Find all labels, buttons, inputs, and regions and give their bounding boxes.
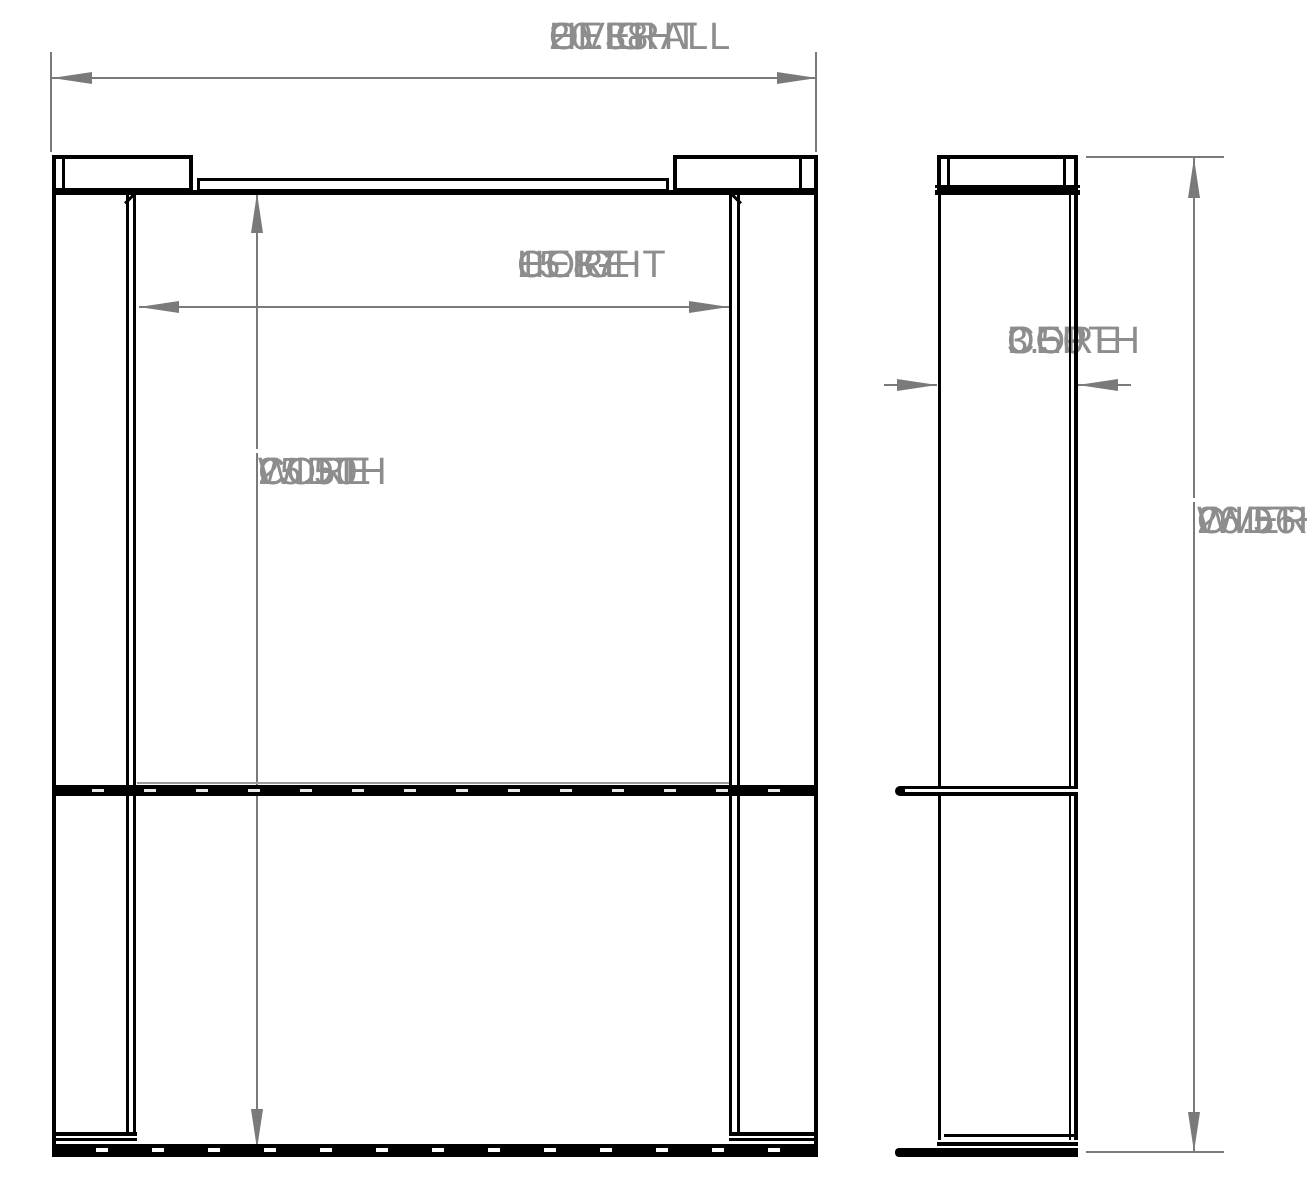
side-cap-flange xyxy=(935,185,1080,188)
dimension-line xyxy=(52,77,817,79)
front-right-tab xyxy=(673,155,818,192)
front-right-tab-wall xyxy=(799,155,802,192)
extension-line xyxy=(1086,1151,1224,1153)
arrowhead-up-icon xyxy=(1188,158,1200,198)
arrowhead-right-icon xyxy=(897,379,937,391)
arrowhead-right-icon xyxy=(689,301,729,313)
front-right-inner-wall xyxy=(737,195,740,1136)
dim-overall-width-label: 26.56 OVERALL WIDTH xyxy=(1185,498,1209,502)
front-right-bottom-cap xyxy=(729,1132,818,1136)
side-bottom-tab xyxy=(895,1148,1078,1157)
front-fin-line xyxy=(137,782,729,784)
front-bottom-band xyxy=(52,1144,818,1157)
dim-overall-height-label: 20.38 OVERALL HEIGHT xyxy=(537,14,561,18)
side-bottom-line xyxy=(944,1134,1074,1137)
front-left-outer-wall xyxy=(52,192,56,1145)
side-left-wall xyxy=(938,195,941,1140)
front-left-inner-wall xyxy=(133,195,136,1136)
arrowhead-down-icon xyxy=(251,1109,263,1149)
arrowhead-down-icon xyxy=(1188,1112,1200,1152)
side-right-wall xyxy=(1074,195,1078,1140)
front-left-tab xyxy=(52,155,193,192)
dim-label-line: HEIGHT xyxy=(517,244,667,287)
extension-line xyxy=(50,52,52,152)
front-mid-seam xyxy=(52,785,818,796)
extension-line xyxy=(815,52,817,152)
dimension-line xyxy=(139,306,729,308)
arrowhead-left-icon xyxy=(52,72,92,84)
arrowhead-left-icon xyxy=(1078,379,1118,391)
arrowhead-left-icon xyxy=(139,301,179,313)
front-right-bottom-cap xyxy=(729,1138,818,1141)
arrowhead-right-icon xyxy=(777,72,817,84)
dim-label-line: WIDTH xyxy=(258,451,388,494)
side-right-wall xyxy=(1069,195,1071,1140)
arrowhead-up-icon xyxy=(251,193,263,233)
dim-core-width-label: 25.50 CORE WIDTH xyxy=(246,449,270,453)
dim-core-height-label: 15.87 CORE HEIGHT xyxy=(505,242,529,246)
side-bottom-line xyxy=(937,1142,1078,1146)
dim-label-line: HEIGHT xyxy=(549,16,699,59)
extension-line xyxy=(1086,156,1224,158)
front-right-outer-wall xyxy=(814,192,818,1145)
front-right-inner-wall xyxy=(729,195,732,1136)
technical-drawing: 20.38 OVERALL HEIGHT 15.87 CORE HEIGHT 2… xyxy=(0,0,1307,1193)
front-left-bottom-cap xyxy=(52,1132,137,1136)
front-left-inner-wall xyxy=(126,195,129,1136)
side-cap-flange xyxy=(935,190,1080,195)
dim-label-line: WIDTH xyxy=(1197,500,1307,543)
front-left-tab-wall xyxy=(62,155,65,192)
front-core-top-edge xyxy=(52,190,818,195)
dimension-line xyxy=(1193,158,1195,1152)
side-mid-seam-gap xyxy=(905,789,1078,792)
front-left-bottom-cap xyxy=(52,1138,137,1141)
dimension-line xyxy=(256,193,258,1149)
